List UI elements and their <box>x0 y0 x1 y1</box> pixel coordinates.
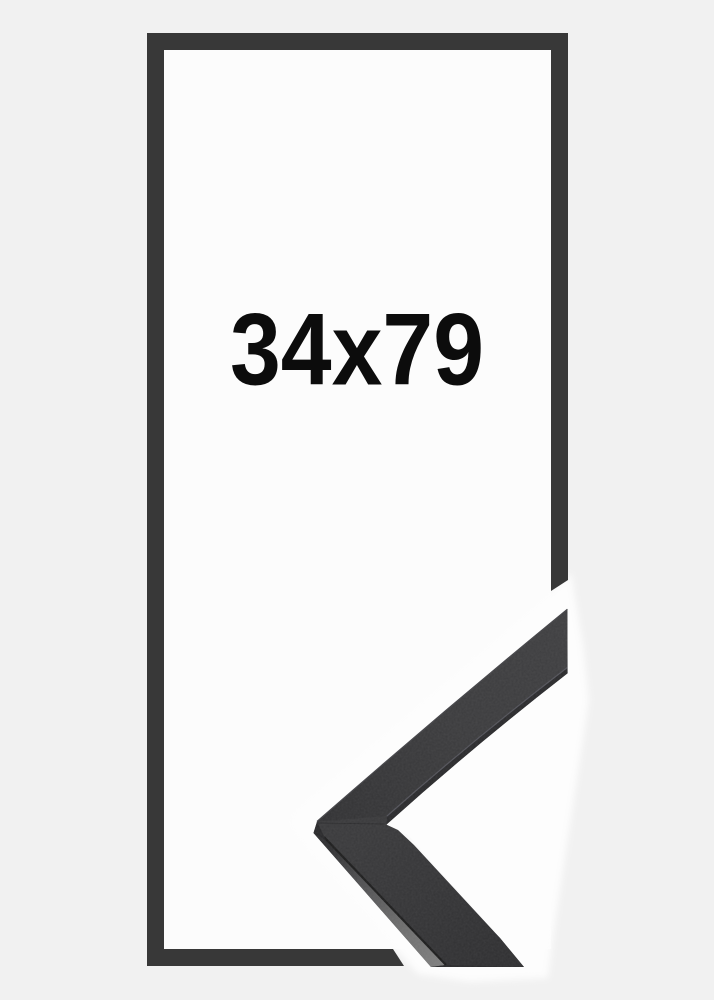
svg-text:34x79: 34x79 <box>230 293 484 407</box>
